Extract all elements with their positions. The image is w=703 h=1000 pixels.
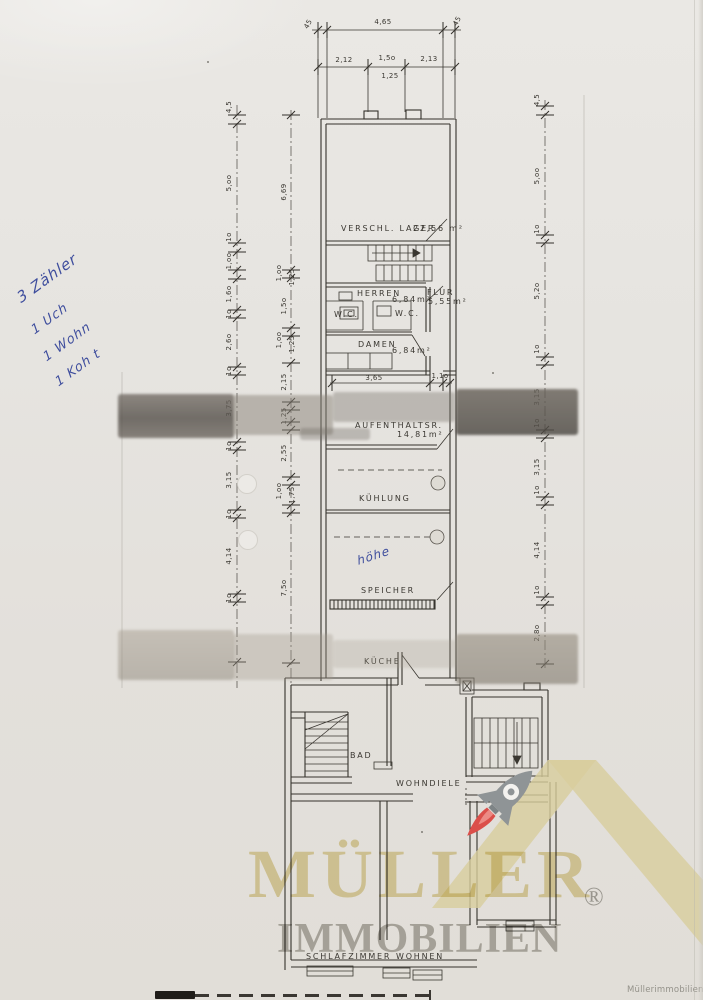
scanned-floorplan-page: 4,65 45 45 2,12 1,5o 1,25 2,13 3,65 1,1o… xyxy=(0,0,703,1000)
dim-label: 1,75 xyxy=(288,486,296,503)
scale-bar-end-tick xyxy=(429,990,431,1000)
dim-label: 2,6o xyxy=(225,333,233,350)
dim-label: 4,14 xyxy=(533,541,541,558)
paper-edge-shadow xyxy=(698,0,703,1000)
paper-fold-line xyxy=(694,0,695,1000)
scan-artifact-band xyxy=(233,634,333,680)
room-label-wc-right: W.C. xyxy=(395,309,420,318)
room-label-wc-left: W.C. xyxy=(334,310,359,319)
scale-bar xyxy=(155,991,195,999)
punch-hole xyxy=(238,530,258,550)
dim-label: 5,oo xyxy=(225,175,233,192)
scan-artifact-band xyxy=(333,640,456,668)
column-circle xyxy=(430,530,444,544)
dim-label: 2,13 xyxy=(420,55,437,63)
dim-label: 1o xyxy=(225,441,233,451)
punch-hole xyxy=(237,474,257,494)
dim-label: 1o xyxy=(225,366,233,376)
dim-label: 6,69 xyxy=(280,183,288,200)
scan-artifact-band xyxy=(118,630,234,680)
scan-artifact-band xyxy=(333,392,455,422)
dim-label: 1,5o xyxy=(378,54,395,62)
dim-label: 1,25 xyxy=(288,335,296,352)
scan-artifact-band xyxy=(456,634,578,684)
dust-speck xyxy=(207,61,209,63)
dim-label: 4,5 xyxy=(225,101,233,113)
dim-label: 1o xyxy=(533,485,541,495)
dim-label: 4,65 xyxy=(374,18,391,26)
column-circle xyxy=(431,476,445,490)
dim-label: 2,12 xyxy=(335,56,352,64)
scan-artifact-band xyxy=(456,389,578,435)
logo-brand-text: MÜLLER xyxy=(248,840,594,908)
dim-label: 2,15 xyxy=(280,373,288,390)
dust-speck xyxy=(492,372,494,374)
dim-label: 3,65 xyxy=(365,374,382,382)
dim-label: 1,6o xyxy=(225,285,233,302)
dim-label: 1,oo xyxy=(275,265,283,282)
dim-label: 4,5 xyxy=(533,94,541,106)
logo-subtitle-text: IMMOBILIEN xyxy=(277,918,562,960)
dim-label: 1o xyxy=(225,593,233,603)
room-area-verschl-lager: 22,56 m² xyxy=(413,224,464,233)
dim-label: 3,15 xyxy=(225,471,233,488)
dim-label: 7,5o xyxy=(280,579,288,596)
room-area-aufenthaltsraum: 14,81m² xyxy=(397,430,444,439)
dim-label: 1o xyxy=(533,344,541,354)
room-area-herren: 6,84m² xyxy=(392,295,432,304)
registered-trademark-symbol: ® xyxy=(584,882,604,912)
scan-artifact-band xyxy=(118,394,234,438)
room-label-damen: DAMEN xyxy=(358,340,396,349)
room-area-damen: 6,84m² xyxy=(392,346,432,355)
dim-label: 1o xyxy=(225,309,233,319)
dim-label: 1o xyxy=(533,224,541,234)
room-label-bad: BAD xyxy=(350,751,373,760)
dim-label: 45 xyxy=(451,15,463,27)
room-label-speicher: SPEICHER xyxy=(361,586,415,595)
room-area-flur: 5,55m² xyxy=(428,297,468,306)
room-label-wohndiele: WOHNDIELE xyxy=(396,779,462,788)
dim-label: 2,55 xyxy=(280,444,288,461)
room-label-kuehlung: KÜHLUNG xyxy=(359,493,411,503)
scale-bar-line xyxy=(195,994,431,997)
dim-label: 1,oo xyxy=(275,332,283,349)
dim-label: 1,oo xyxy=(275,483,283,500)
dim-label: 1,oo xyxy=(225,253,233,270)
dim-label: 1,1o xyxy=(431,372,448,380)
scan-artifact-band xyxy=(300,428,370,440)
dim-label: 3,15 xyxy=(533,458,541,475)
dust-speck xyxy=(421,831,423,833)
dim-label: 1o xyxy=(225,232,233,242)
dim-label: 1o xyxy=(225,509,233,519)
room-label-flur: FLUR xyxy=(427,288,454,297)
dim-label: 5,oo xyxy=(533,168,541,185)
dim-label: 1,25 xyxy=(381,72,398,80)
dim-label: 4,14 xyxy=(225,547,233,564)
logo-watermark-text: Müllerimmobilien® xyxy=(627,985,703,995)
dim-label: 1,5o xyxy=(280,297,288,314)
dim-label: 1,25 xyxy=(288,268,296,285)
dim-label: 45 xyxy=(302,18,314,30)
dim-label: 5,2o xyxy=(533,282,541,299)
dim-label: 1o xyxy=(533,585,541,595)
